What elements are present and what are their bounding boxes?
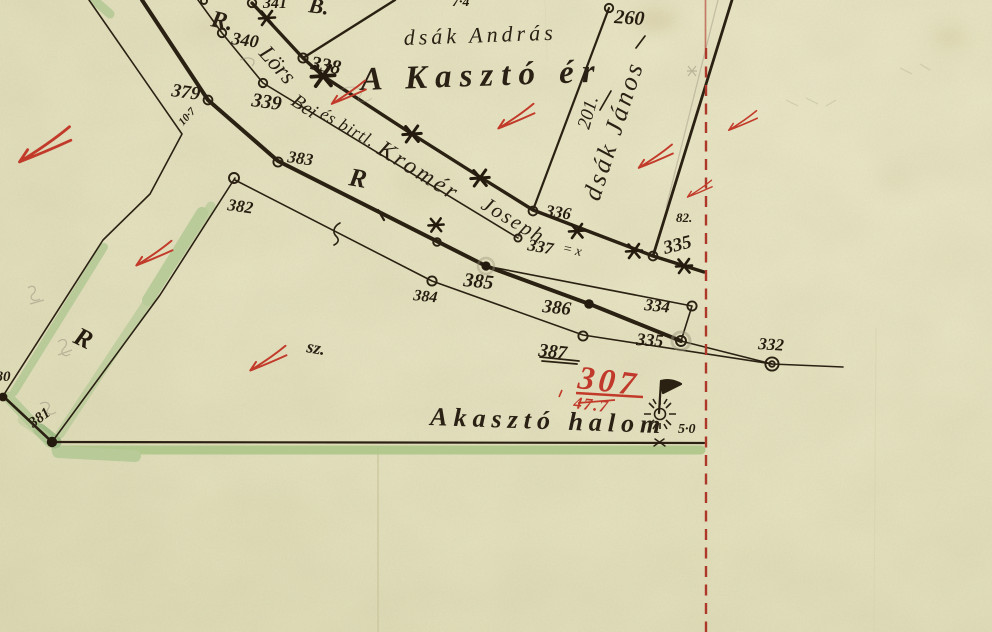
svg-text:sz.: sz. bbox=[304, 336, 327, 359]
svg-text:260: 260 bbox=[613, 6, 645, 30]
svg-text:5·0: 5·0 bbox=[678, 422, 696, 437]
svg-text:384: 384 bbox=[412, 287, 439, 307]
svg-text:385: 385 bbox=[461, 269, 494, 294]
svg-text:379: 379 bbox=[169, 80, 202, 105]
svg-text:B.: B. bbox=[306, 0, 330, 20]
svg-text:332: 332 bbox=[757, 334, 785, 355]
svg-text:335: 335 bbox=[635, 329, 664, 351]
svg-text:336: 336 bbox=[543, 201, 572, 224]
svg-text:382: 382 bbox=[225, 195, 254, 218]
svg-text:82.: 82. bbox=[676, 210, 692, 225]
svg-text:340: 340 bbox=[229, 28, 260, 52]
svg-text:380: 380 bbox=[0, 369, 11, 385]
svg-text:7·4: 7·4 bbox=[452, 0, 470, 10]
svg-text:386: 386 bbox=[540, 296, 572, 320]
svg-text:339: 339 bbox=[249, 89, 283, 115]
svg-text:341: 341 bbox=[262, 0, 287, 12]
svg-text:383: 383 bbox=[285, 147, 314, 170]
svg-text:dsák András: dsák András bbox=[403, 20, 557, 50]
svg-text:387: 387 bbox=[536, 340, 569, 364]
svg-text:334: 334 bbox=[643, 295, 671, 317]
